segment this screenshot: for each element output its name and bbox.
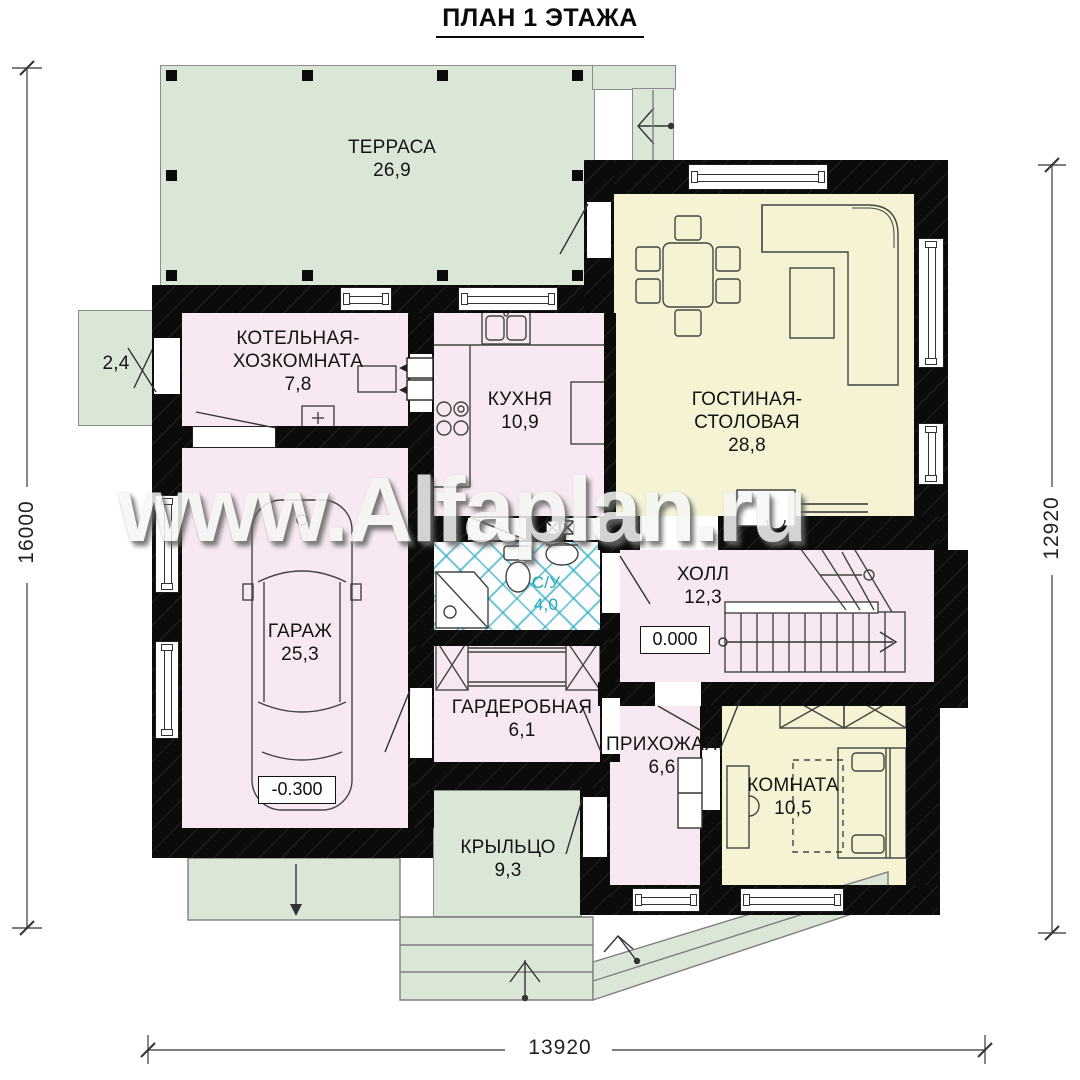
door-leaf <box>658 706 700 730</box>
door-leaf <box>385 690 410 752</box>
room-area: 7,8 <box>203 373 393 396</box>
door-leaf-layer <box>0 0 1080 1080</box>
door-leaf <box>472 518 526 540</box>
room-label-wardrobe: ГАРДЕРОБНАЯ 6,1 <box>432 696 612 742</box>
room-area: 10,5 <box>728 797 858 820</box>
vent-shafts <box>546 521 574 534</box>
room-name: КОМНАТА <box>728 774 858 797</box>
room-name: СТОЛОВАЯ <box>652 411 842 434</box>
dimension-label-bottom: 13920 <box>505 1036 615 1060</box>
level-mark-garage: -0.300 <box>258 776 336 804</box>
dimension-label-right: 12920 <box>1040 473 1064 583</box>
room-label-garage: ГАРАЖ 25,3 <box>240 620 360 666</box>
room-label-side-terrace: 2,4 <box>88 352 144 375</box>
door-leaf <box>720 700 740 750</box>
room-label-living: ГОСТИНАЯ- СТОЛОВАЯ 28,8 <box>652 388 842 457</box>
room-area: 12,3 <box>648 586 758 609</box>
room-name: КРЫЛЬЦО <box>423 836 593 859</box>
room-name: КОТЕЛЬНАЯ- <box>203 327 393 350</box>
room-name: ГАРДЕРОБНАЯ <box>432 696 612 719</box>
room-name: ХОЛЛ <box>648 563 758 586</box>
dimension-label-left: 16000 <box>15 477 39 587</box>
room-name: ХОЗКОМНАТА <box>203 350 393 373</box>
room-label-bathroom: С/У 4,0 <box>516 572 576 616</box>
room-label-hall: ХОЛЛ 12,3 <box>648 563 758 609</box>
tv-stand <box>737 490 868 529</box>
room-name: ГАРАЖ <box>240 620 360 643</box>
room-area: 9,3 <box>423 859 593 882</box>
room-name: С/У <box>516 572 576 594</box>
room-area: 26,9 <box>302 159 482 182</box>
floor-plan-canvas: ПЛАН 1 ЭТАЖА ТЕРРАСА 26,9 2,4 КОТЕЛЬНАЯ-… <box>0 0 1080 1080</box>
room-label-entry: ПРИХОЖАЯ 6,6 <box>606 733 718 779</box>
door-hardware <box>399 358 433 400</box>
room-name: ПРИХОЖАЯ <box>606 733 718 756</box>
door-leaf <box>196 412 276 428</box>
room-area: 28,8 <box>652 434 842 457</box>
room-area: 2,4 <box>88 352 144 375</box>
page-title: ПЛАН 1 ЭТАЖА <box>436 4 644 38</box>
room-label-kitchen: КУХНЯ 10,9 <box>455 388 585 434</box>
door-leaf <box>620 556 650 604</box>
room-name: КУХНЯ <box>455 388 585 411</box>
room-area: 6,1 <box>432 719 612 742</box>
room-area: 10,9 <box>455 411 585 434</box>
room-area: 4,0 <box>516 594 576 616</box>
room-area: 6,6 <box>606 756 718 779</box>
room-name: ТЕРРАСА <box>302 136 482 159</box>
level-mark-hall: 0.000 <box>640 626 710 654</box>
door-leaf <box>560 204 588 254</box>
room-label-terrace: ТЕРРАСА 26,9 <box>302 136 482 182</box>
room-label-porch: КРЫЛЬЦО 9,3 <box>423 836 593 882</box>
room-name: ГОСТИНАЯ- <box>652 388 842 411</box>
room-label-room: КОМНАТА 10,5 <box>728 774 858 820</box>
room-label-boiler: КОТЕЛЬНАЯ- ХОЗКОМНАТА 7,8 <box>203 327 393 396</box>
room-area: 25,3 <box>240 643 360 666</box>
